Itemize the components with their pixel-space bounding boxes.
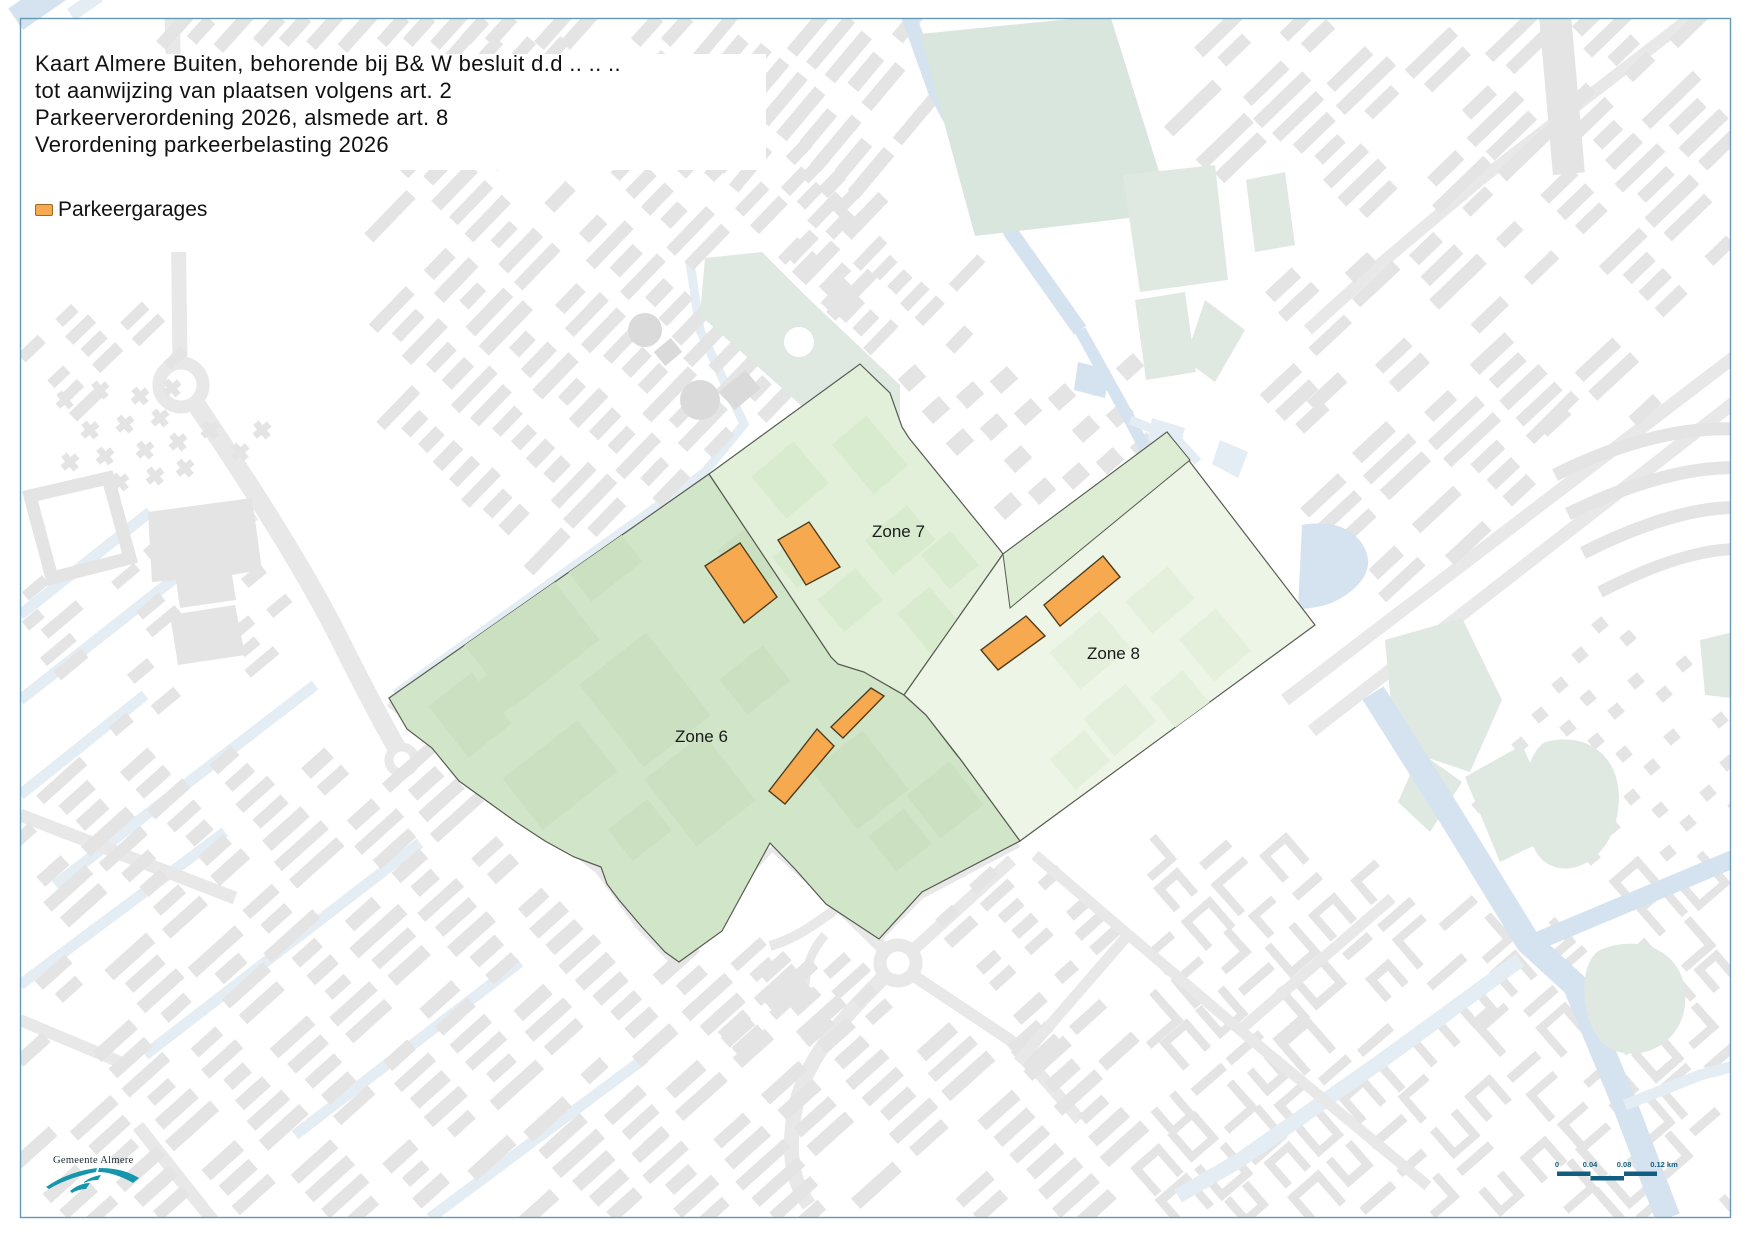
svg-text:0.04: 0.04: [1583, 1160, 1598, 1169]
svg-text:0: 0: [1555, 1160, 1559, 1169]
svg-text:Gemeente Almere: Gemeente Almere: [53, 1155, 134, 1166]
svg-text:0.08: 0.08: [1617, 1160, 1632, 1169]
svg-text:0.12 km: 0.12 km: [1650, 1160, 1678, 1169]
